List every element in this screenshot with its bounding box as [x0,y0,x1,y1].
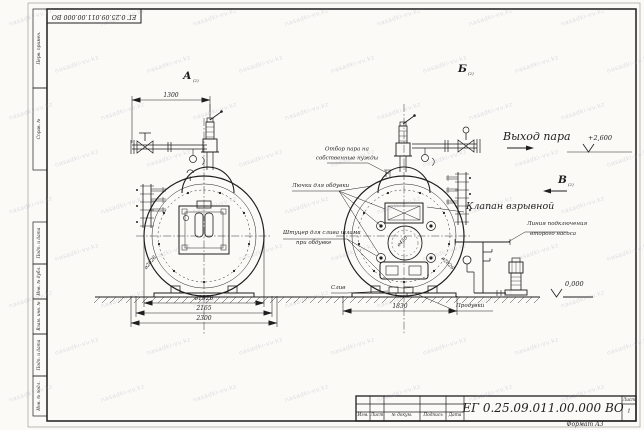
annotation-blowdown: Продувки [456,304,484,310]
dim-shell-dia: ø1920 [195,296,214,302]
margin-cell-inv-podl: Инв. № подл. [38,381,42,410]
dim-1830: 1830 [392,304,407,310]
view-label-a: А [183,71,192,82]
margin-cell-sprav-no: Справ. № [38,119,42,140]
sheet-label: Лист [623,398,636,402]
view-label-a-sub: (2) [193,79,199,83]
annotation-own-needs-1: Отбор пара на [325,147,369,153]
dim-outer-dia-left: ø2026 [144,255,158,270]
annotation-sludge-1: Штуцер для слива шлама [283,231,361,237]
sheet-number: 1 [627,409,631,415]
view-label-v: В [558,175,567,186]
margin-cell-podp-data-1: Подп. и дата [38,228,42,259]
title-col-dokum: № докум. [392,414,413,418]
annotation-steam-outlet: Выход пара [503,131,571,142]
dim-2165: 2165 [196,306,211,312]
title-block-doc-number: ЕГ 0.25.09.011.00.000 ВО [462,402,623,414]
elevation-top-value: +2,600 [588,135,612,142]
elevation-zero-value: 0,000 [565,281,584,288]
annotation-drain: Слив [331,286,345,292]
margin-cell-podp-data-2: Подп. и дата [38,340,42,371]
annotation-sludge-2: при обдувке [296,241,331,247]
dim-outer-dia-right: ø2026 [440,257,455,272]
top-stamp-number: ЕГ 0.25.09.011.00.000 ВО [47,9,141,23]
title-col-list: Лист [371,414,384,418]
title-col-data: Дата [449,414,462,418]
annotation-pump-line-1: Линия подключения [527,222,587,228]
dim-2300: 2300 [196,316,211,322]
title-col-podpis: Подпись [423,414,442,418]
view-label-b-sub: (2) [468,72,474,76]
margin-cell-perv-primen: Перв. примен. [38,32,42,65]
drawing-sheet: nasadki-vv.kznasadki-vv.kznasadki-vv.kzn… [0,0,644,430]
dim-1300: 1300 [163,93,178,99]
margin-cell-inv-dubl: Инв. № дубл. [38,266,42,295]
title-col-izm: Изм. [357,414,368,418]
margin-cell-vzam-inv: Взам. инв. № [38,301,42,330]
format-note: Формат А3 [567,422,604,428]
annotation-soot-hatches: Лючки для обдувки [292,184,349,190]
dim-manhole-dia: ø450 [397,236,409,248]
annotation-explosion-valve: Клапан взрывной [466,202,554,212]
annotation-pump-line-2: второго насоса [530,232,576,238]
view-label-b: Б [458,64,467,75]
view-label-v-sub: (2) [568,183,574,187]
annotation-own-needs-2: собственные нужды [316,156,378,162]
